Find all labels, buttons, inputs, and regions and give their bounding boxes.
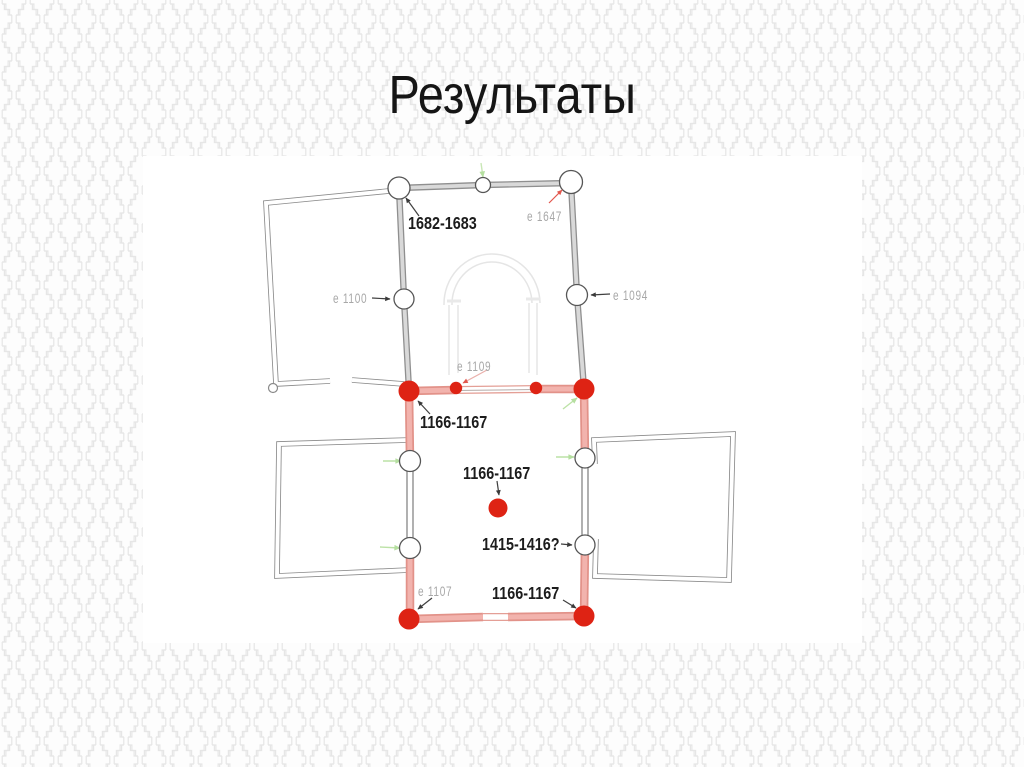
svg-text:1166-1167: 1166-1167 (492, 584, 559, 604)
svg-text:1166-1167: 1166-1167 (463, 464, 530, 484)
svg-text:1415-1416?: 1415-1416? (482, 535, 560, 555)
svg-text:e 1107: e 1107 (418, 583, 452, 599)
svg-text:e 1100: e 1100 (333, 290, 367, 306)
svg-text:e 1094: e 1094 (613, 287, 648, 303)
svg-text:e 1647: e 1647 (527, 208, 562, 224)
svg-text:1166-1167: 1166-1167 (420, 413, 487, 433)
svg-text:e 1109: e 1109 (457, 358, 491, 374)
svg-text:1682-1683: 1682-1683 (408, 214, 477, 234)
